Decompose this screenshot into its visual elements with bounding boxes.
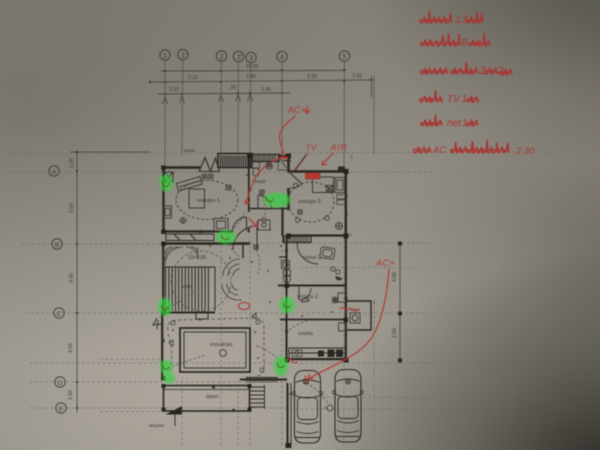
svg-text:1.: 1.: [350, 154, 354, 159]
svg-text:vooupu 1.: vooupu 1.: [197, 198, 222, 204]
svg-text:.50: .50: [230, 85, 237, 91]
svg-text:3.50: 3.50: [69, 203, 75, 213]
svg-text:2: 2: [497, 65, 504, 77]
svg-text:2: 2: [220, 54, 224, 61]
svg-text:2.50: 2.50: [392, 328, 398, 338]
svg-text:1.50: 1.50: [68, 390, 74, 400]
svg-text:AC+: AC+: [375, 258, 395, 269]
svg-text:3: 3: [249, 56, 253, 63]
svg-text:1.50: 1.50: [352, 74, 362, 80]
svg-text:D: D: [58, 380, 63, 387]
svg-text:net: net: [447, 118, 462, 129]
svg-text:2.10: 2.10: [188, 75, 198, 81]
svg-text:C: C: [57, 311, 62, 318]
svg-text:4: 4: [280, 55, 284, 62]
svg-text:TV: TV: [447, 94, 461, 105]
svg-text:1: 1: [462, 94, 468, 105]
svg-text:1.00: 1.00: [69, 158, 75, 168]
svg-text:3.50: 3.50: [307, 74, 317, 80]
svg-text:5: 5: [343, 54, 347, 61]
svg-text:iaaun: iaaun: [184, 148, 196, 153]
svg-text:8: 8: [461, 37, 468, 49]
svg-text:TV: TV: [306, 143, 318, 153]
svg-text:vooupu 3.: vooupu 3.: [298, 199, 323, 205]
svg-text:vooulnau: vooulnau: [210, 342, 232, 348]
svg-text:shuuhu: shuuhu: [149, 423, 165, 428]
svg-text:2.40: 2.40: [246, 74, 256, 80]
svg-text:10.00: 10.00: [246, 64, 259, 70]
svg-text:4.00: 4.00: [392, 272, 398, 282]
svg-text:1.: 1.: [349, 232, 353, 237]
svg-text:AC +: AC +: [432, 145, 455, 156]
svg-text:1: 1: [462, 118, 468, 129]
svg-text:vooupu 2.: vooupu 2.: [297, 294, 319, 300]
svg-text:vooniu: vooniu: [298, 331, 313, 337]
svg-text:AIR: AIR: [330, 143, 348, 153]
svg-text:uuln: uuln: [182, 284, 192, 290]
svg-text:4.00: 4.00: [68, 343, 74, 353]
svg-text:vooun 2.: vooun 2.: [303, 255, 322, 261]
svg-text:2': 2': [237, 55, 242, 62]
svg-text:E: E: [59, 406, 64, 413]
svg-text:1.: 1.: [373, 300, 377, 305]
svg-text:1.00: 1.00: [169, 87, 179, 93]
svg-text:B: B: [55, 242, 59, 249]
svg-text:2.30: 2.30: [515, 146, 535, 157]
svg-text:2: 2: [479, 65, 486, 77]
svg-text:AC+: AC+: [287, 105, 306, 115]
svg-text:iaaun: iaaun: [206, 394, 218, 400]
svg-text:A: A: [52, 169, 57, 176]
svg-text:4.00: 4.00: [69, 273, 75, 283]
svg-text:1: 1: [163, 53, 167, 60]
svg-text:13: 13: [455, 14, 468, 26]
svg-text:15+0.00: 15+0.00: [188, 255, 206, 261]
svg-text:1.40: 1.40: [261, 87, 271, 93]
svg-text:1': 1': [181, 53, 186, 60]
